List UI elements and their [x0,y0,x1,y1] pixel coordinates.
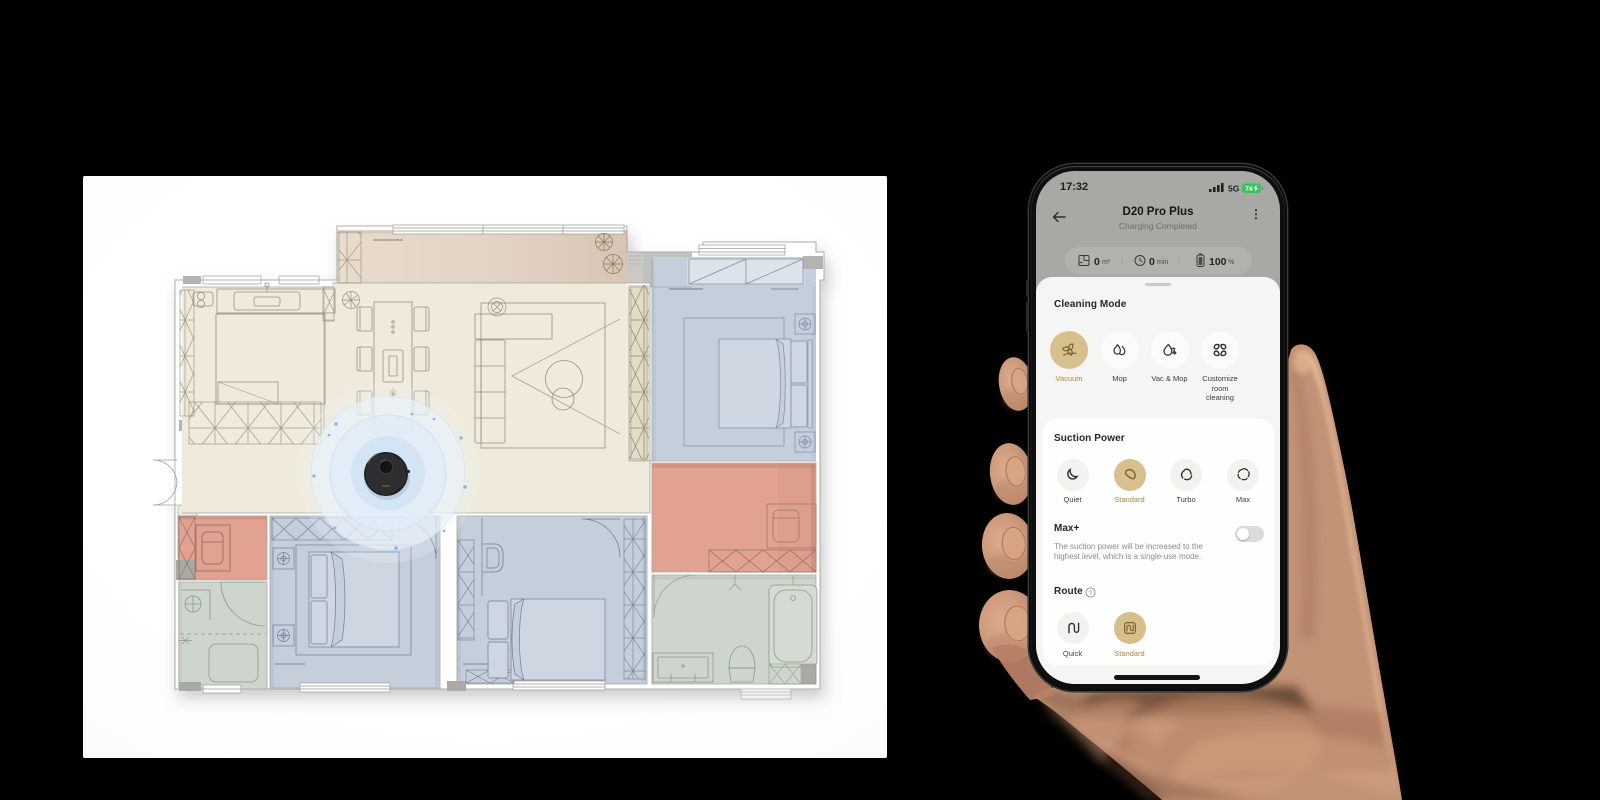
svg-text:100: 100 [1209,256,1227,268]
svg-text:min: min [1157,259,1168,266]
svg-text:0: 0 [1149,256,1155,268]
svg-text:m²: m² [1102,259,1111,266]
svg-text:5G: 5G [1228,184,1240,194]
svg-text:?: ? [1089,590,1093,597]
svg-text:0: 0 [1094,256,1100,268]
svg-text:%: % [1228,259,1234,266]
svg-text:74: 74 [1245,186,1253,193]
